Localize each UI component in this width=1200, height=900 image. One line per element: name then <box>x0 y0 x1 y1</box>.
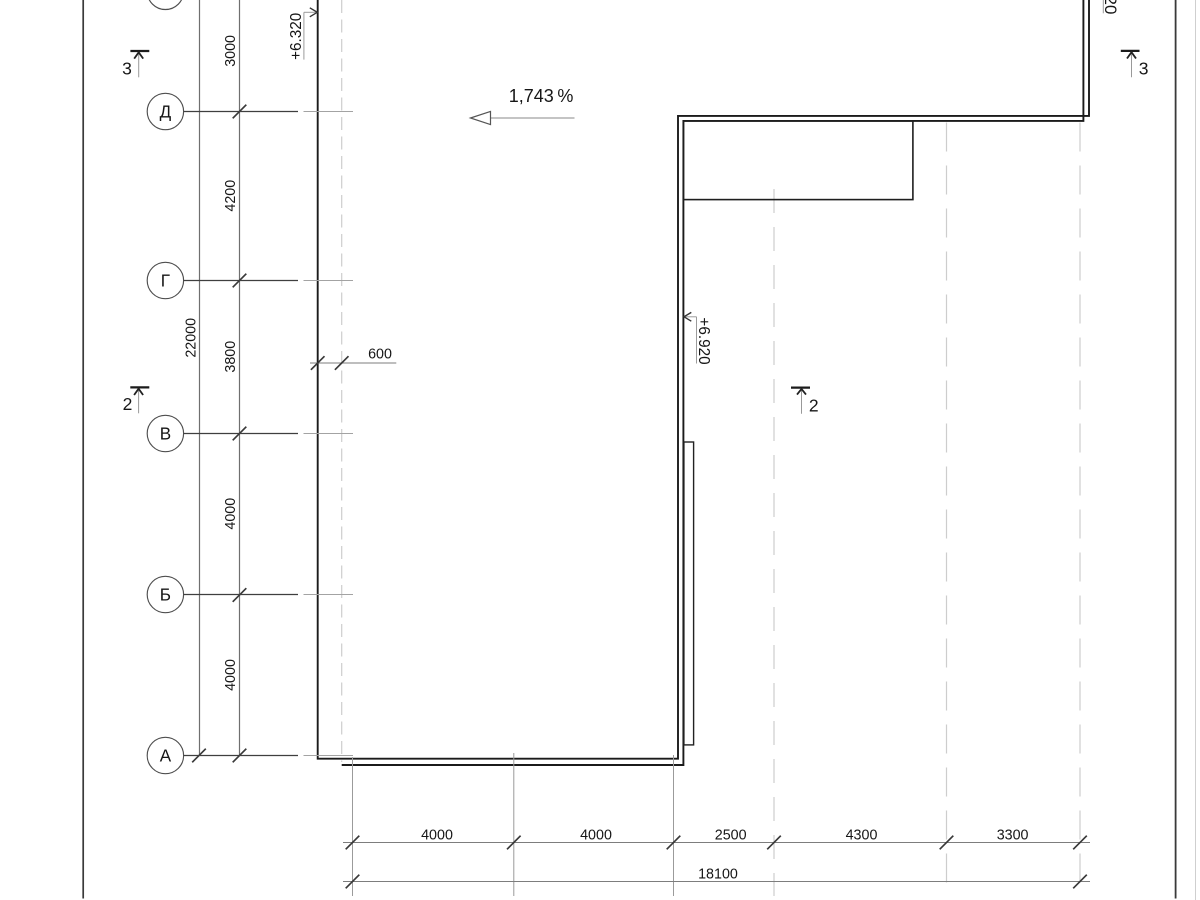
svg-text:А: А <box>160 746 172 765</box>
svg-text:4000: 4000 <box>580 827 612 843</box>
svg-text:18100: 18100 <box>698 866 738 882</box>
svg-text:1,743 %: 1,743 % <box>509 86 574 106</box>
svg-text:2500: 2500 <box>715 827 747 843</box>
svg-text:+6.320: +6.320 <box>1101 0 1120 14</box>
svg-text:В: В <box>160 424 171 443</box>
svg-text:22000: 22000 <box>183 318 199 358</box>
svg-text:3800: 3800 <box>223 341 239 373</box>
svg-text:+6.920: +6.920 <box>695 317 712 364</box>
svg-text:600: 600 <box>368 347 392 363</box>
svg-text:4000: 4000 <box>421 827 453 843</box>
svg-text:3: 3 <box>122 59 132 79</box>
svg-text:3000: 3000 <box>223 35 239 67</box>
svg-text:3300: 3300 <box>997 827 1029 843</box>
svg-text:4000: 4000 <box>223 659 239 691</box>
svg-text:+6.320: +6.320 <box>288 13 305 60</box>
svg-text:Б: Б <box>160 585 171 604</box>
svg-text:2: 2 <box>123 394 133 414</box>
svg-text:Д: Д <box>160 102 172 121</box>
svg-text:4000: 4000 <box>223 498 239 530</box>
svg-text:4200: 4200 <box>223 180 239 212</box>
svg-text:Г: Г <box>161 271 170 290</box>
svg-text:2: 2 <box>809 396 819 416</box>
svg-text:3: 3 <box>1139 59 1149 79</box>
svg-text:4300: 4300 <box>846 827 878 843</box>
